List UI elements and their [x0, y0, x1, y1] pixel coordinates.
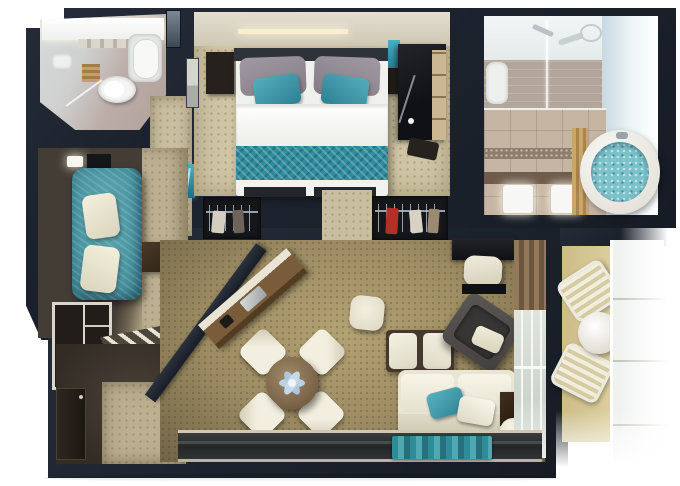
railing-divider-3: [613, 424, 667, 426]
tub-faucet: [616, 132, 628, 139]
bed-runner-teal: [236, 146, 388, 184]
desk-phone: [408, 118, 414, 124]
chrome-fixture-3: [580, 24, 602, 42]
wardrobe-right-garment-tan: [427, 209, 440, 234]
chaise-lounge: [72, 168, 142, 300]
bedroom-wall-art: [186, 58, 199, 108]
bathtub-basin: [133, 39, 159, 79]
shower-tray: [486, 62, 508, 104]
balcony-railing: [610, 240, 664, 466]
flower-centerpiece-core: [288, 379, 296, 387]
ottoman: [348, 294, 385, 331]
room-guest-bathroom: [40, 14, 166, 130]
toilet-seat: [104, 81, 124, 98]
bar-item: [219, 314, 235, 329]
sink: [52, 54, 72, 69]
bathtub: [128, 34, 162, 82]
railing-divider-1: [613, 298, 667, 300]
bar-sink: [239, 285, 267, 312]
desk-stool: [406, 137, 439, 161]
entry-door-handle: [79, 395, 83, 399]
coffee-bench-cushion-left: [389, 333, 417, 369]
shower-glass-screen: [66, 79, 103, 106]
railing-divider-2: [613, 360, 667, 362]
room-bedroom: [194, 12, 450, 196]
dining-table: [266, 357, 318, 409]
wardrobe-left-garment-cream: [211, 210, 226, 233]
wardrobe-right-garment-white: [409, 209, 423, 233]
credenza-light: [238, 29, 348, 34]
chaise-pillow-bottom: [79, 244, 120, 294]
whirlpool-tub-water: [591, 142, 649, 202]
bedroom-doorway: [322, 190, 372, 240]
vanity-desk-highlight: [398, 75, 415, 123]
glass-door-sheen: [514, 366, 546, 369]
sink-left: [502, 184, 534, 214]
wardrobe-right-garment-red: [385, 208, 398, 235]
living-desk-stool: [463, 255, 503, 287]
teal-runner-rug: [392, 436, 492, 459]
towel-shelf-niche: [432, 50, 446, 140]
bed: [236, 48, 388, 196]
wardrobe-left-garment-brown: [232, 210, 245, 234]
nightstand-left: [206, 52, 234, 94]
lounge-lamp: [67, 156, 83, 167]
plan-ground-shadow: [44, 474, 572, 482]
entry-door: [56, 388, 86, 460]
teak-mat: [82, 64, 100, 82]
floor-plan: [0, 0, 680, 486]
vanity-shelf-items: [78, 39, 130, 48]
wardrobe-left: [203, 197, 261, 239]
shower-glass-horizontal: [484, 108, 606, 110]
toilet: [98, 76, 136, 103]
foot-bench-left: [244, 187, 306, 197]
living-desk-shelf: [462, 284, 506, 294]
shelf-line-1: [83, 325, 109, 327]
room-master-bathroom: [484, 16, 658, 215]
wardrobe-right: [372, 196, 448, 240]
curtain-wall: [514, 240, 546, 310]
whirlpool-tub: [580, 130, 660, 214]
chaise-pillow-top: [81, 192, 121, 240]
lounge-speaker: [87, 154, 111, 168]
bathroom-door-panel: [166, 10, 181, 48]
